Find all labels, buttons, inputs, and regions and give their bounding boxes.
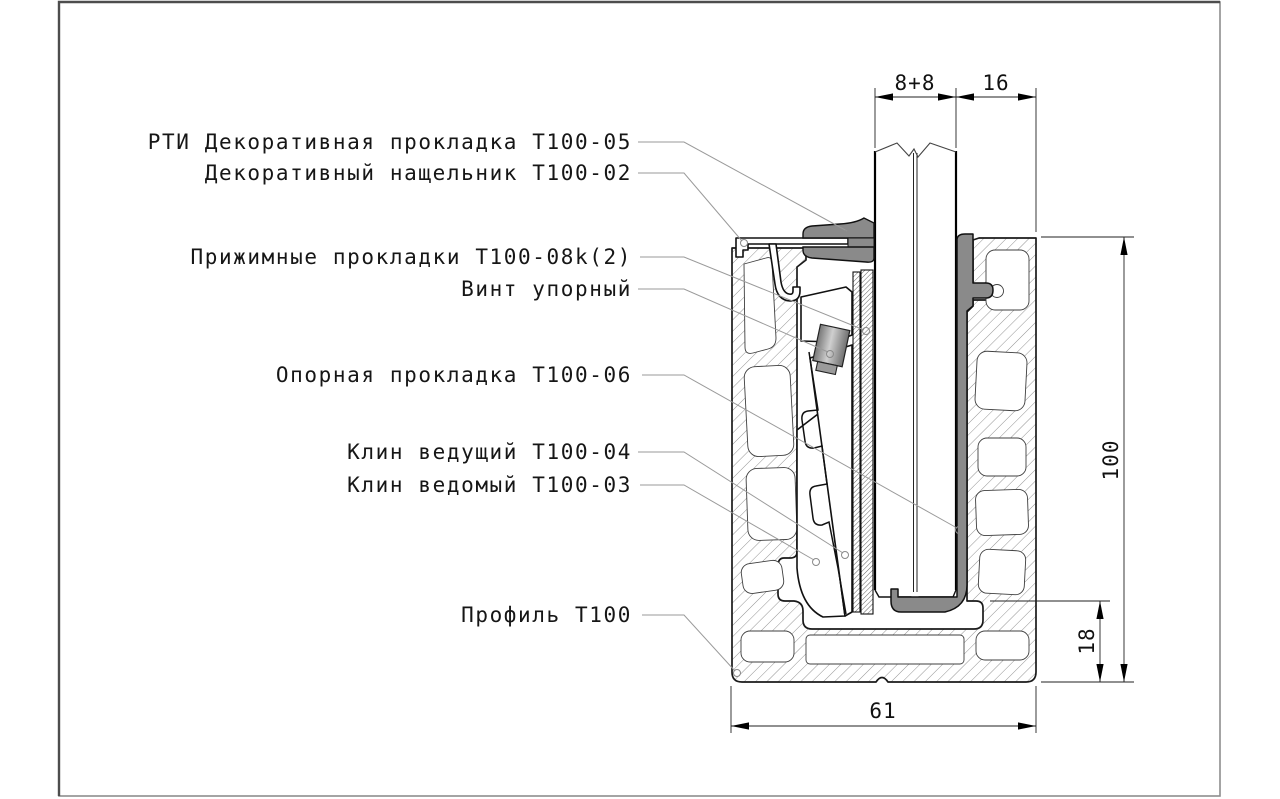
dim-text-profile-height: 100 bbox=[1099, 440, 1123, 481]
pocket-left-mid2 bbox=[746, 467, 797, 541]
cad-drawing: 8+8 16 100 18 61 РТИ Декоративная прокла… bbox=[0, 0, 1280, 799]
pressure-pad-1 bbox=[853, 272, 860, 612]
pocket-right-top bbox=[986, 250, 1029, 310]
pocket-right-mid2 bbox=[978, 438, 1026, 476]
decor-gasket-mid bbox=[848, 238, 874, 247]
drawing-page: 8+8 16 100 18 61 РТИ Декоративная прокла… bbox=[0, 0, 1280, 799]
pocket-right-channel bbox=[976, 631, 1029, 660]
label-support-gasket: Опорная прокладка Т100-06 bbox=[276, 363, 632, 387]
pressure-pad-2 bbox=[861, 270, 873, 614]
label-stop-screw: Винт упорный bbox=[461, 277, 632, 301]
wedge-assembly bbox=[797, 287, 852, 617]
page-frame bbox=[59, 2, 1220, 796]
dim-text-bottom-flange: 18 bbox=[1075, 627, 1099, 654]
pocket-right-low bbox=[978, 549, 1026, 595]
dim-text-glass-package: 8+8 bbox=[895, 71, 936, 95]
label-wedge-driving: Клин ведущий Т100-04 bbox=[347, 440, 632, 464]
pocket-left-mid1 bbox=[744, 365, 795, 457]
pocket-right-mid3 bbox=[975, 489, 1029, 536]
pocket-left-top bbox=[744, 258, 776, 354]
label-cover-strip: Декоративный нащельник Т100-02 bbox=[205, 161, 632, 185]
label-decor-gasket: РТИ Декоративная прокладка Т100-05 bbox=[148, 130, 632, 154]
pocket-bottom-channel bbox=[806, 635, 964, 664]
pressure-pads-t100-08k bbox=[853, 270, 873, 614]
dim-text-profile-width: 61 bbox=[869, 699, 896, 723]
label-pressure-pads: Прижимные прокладки Т100-08k(2) bbox=[190, 245, 632, 269]
pocket-left-low bbox=[740, 559, 785, 594]
label-profile: Профиль Т100 bbox=[461, 603, 632, 627]
pocket-left-channel bbox=[741, 631, 794, 662]
label-wedge-driven: Клин ведомый Т100-03 bbox=[347, 473, 632, 497]
dim-text-side-gap: 16 bbox=[982, 71, 1009, 95]
pocket-right-mid1 bbox=[975, 351, 1028, 412]
